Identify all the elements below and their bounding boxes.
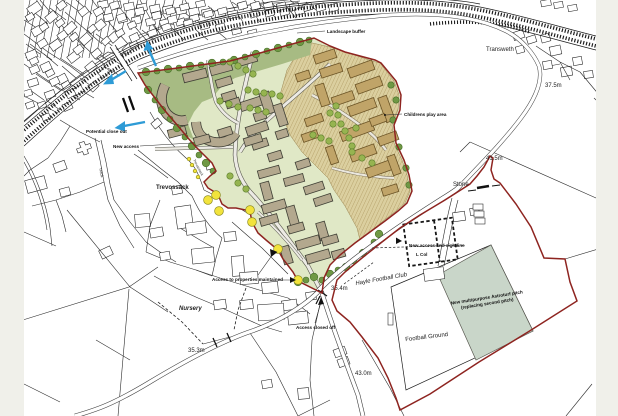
svg-text:41.5m: 41.5m — [486, 156, 503, 162]
svg-text:Access to properties maintaine: Access to properties maintained — [212, 277, 283, 282]
svg-text:Nursery: Nursery — [179, 306, 202, 312]
svg-text:L Col: L Col — [416, 252, 427, 257]
svg-text:Transweth: Transweth — [486, 47, 514, 53]
svg-text:Access closed off: Access closed off — [296, 325, 336, 330]
svg-text:Childrens play area: Childrens play area — [404, 112, 447, 117]
svg-text:New access and sightline: New access and sightline — [409, 243, 465, 248]
svg-text:Trevossack: Trevossack — [156, 185, 189, 191]
svg-text:43.0m: 43.0m — [355, 371, 372, 377]
svg-text:35.3m: 35.3m — [188, 348, 205, 354]
svg-text:Stone: Stone — [453, 182, 469, 188]
svg-text:Landscape buffer: Landscape buffer — [327, 29, 366, 34]
svg-text:New access: New access — [113, 144, 139, 149]
svg-text:37.5m: 37.5m — [545, 83, 562, 89]
svg-text:Potential close out: Potential close out — [86, 129, 127, 134]
